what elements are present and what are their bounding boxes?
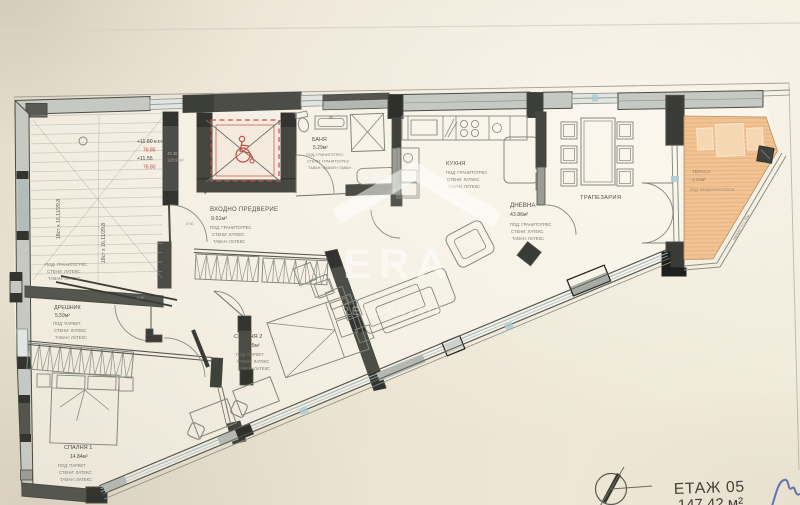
svg-text:ВХОДНО ПРЕДВЕРИЕ: ВХОДНО ПРЕДВЕРИЕ — [210, 207, 278, 213]
svg-text:ТАВАН: ЛАТЕКС: ТАВАН: ЛАТЕКС — [238, 366, 270, 371]
svg-text:14.84м²: 14.84м² — [70, 454, 88, 460]
svg-text:Ø 80: Ø 80 — [186, 222, 193, 226]
svg-text:ПОД: ПАРКЕТ: ПОД: ПАРКЕТ — [58, 463, 86, 468]
svg-text:ТРАПЕЗАРИЯ: ТРАПЕЗАРИЯ — [580, 195, 621, 201]
svg-text:128.92м²: 128.92м² — [167, 158, 185, 163]
svg-text:СТЕНИ: ЛАТЕКС: СТЕНИ: ЛАТЕКС — [237, 359, 270, 364]
svg-text:REAL ESTATE: REAL ESTATE — [341, 306, 445, 318]
svg-text:45.38: 45.38 — [167, 151, 178, 156]
svg-text:E: E — [343, 240, 371, 287]
svg-text:76.80: 76.80 — [143, 165, 156, 171]
svg-text:D 90: D 90 — [137, 296, 144, 300]
svg-text:76.85: 76.85 — [143, 148, 156, 154]
svg-text:13.95м²: 13.95м² — [242, 343, 260, 349]
svg-text:9.61м²: 9.61м² — [211, 216, 227, 222]
svg-text:БАНЯ: БАНЯ — [312, 137, 327, 143]
svg-text:СТЕНИ: ЛАТЕКС: СТЕНИ: ЛАТЕКС — [447, 177, 480, 182]
svg-text:43.86м²: 43.86м² — [510, 212, 529, 218]
svg-text:147.42 м²: 147.42 м² — [678, 495, 744, 505]
svg-text:ПОД: ГРАНИТОГРЕС: ПОД: ГРАНИТОГРЕС — [446, 170, 487, 175]
svg-text:A: A — [416, 240, 446, 287]
svg-text:+11.55: +11.55 — [137, 156, 153, 162]
svg-text:ДНЕВНА: ДНЕВНА — [510, 202, 536, 209]
svg-text:ПОД: ГРАНИТОГРЕС: ПОД: ГРАНИТОГРЕС — [306, 153, 344, 157]
svg-text:ТАВАН: ЛАТЕКС: ТАВАН: ЛАТЕКС — [55, 335, 87, 340]
svg-text:18ст x 16,11/29,8: 18ст x 16,11/29,8 — [101, 223, 107, 263]
svg-text:ТАВАН: ЛАТЕКС: ТАВАН: ЛАТЕКС — [213, 239, 245, 244]
svg-text:ДРЕШНИК: ДРЕШНИК — [54, 305, 82, 311]
svg-text:18ст x 16,11/29,8: 18ст x 16,11/29,8 — [56, 199, 62, 239]
svg-text:СТЕНИ: ГРАНИТОГРЕС: СТЕНИ: ГРАНИТОГРЕС — [307, 160, 350, 164]
svg-text:R: R — [379, 240, 409, 287]
svg-text:КУХНЯ: КУХНЯ — [446, 161, 465, 167]
svg-text:ТАВАН: ЛАТЕКС: ТАВАН: ЛАТЕКС — [48, 276, 81, 281]
svg-text:СТЕНИ: ЛАТЕКС: СТЕНИ: ЛАТЕКС — [47, 269, 80, 274]
svg-text:СПАЛНЯ 1: СПАЛНЯ 1 — [64, 445, 92, 451]
svg-text:СТЕНИ: ЛАТЕКС: СТЕНИ: ЛАТЕКС — [511, 229, 544, 234]
svg-text:ПОД: ГРАНИТОГРЕС: ПОД: ГРАНИТОГРЕС — [210, 225, 251, 230]
svg-text:СТЕНИ: ЛАТЕКС: СТЕНИ: ЛАТЕКС — [59, 470, 92, 475]
svg-text:ТАВАН: ЛАТЕКС: ТАВАН: ЛАТЕКС — [60, 477, 92, 482]
svg-text:ПОД: ГРАНИТОГРЕС: ПОД: ГРАНИТОГРЕС — [45, 262, 88, 267]
svg-text:5.59м²: 5.59м² — [55, 313, 70, 319]
svg-text:ТЕРАСА: ТЕРАСА — [692, 169, 711, 175]
svg-text:5.29м²: 5.29м² — [313, 145, 328, 151]
svg-text:+11.80 к.г.н.: +11.80 к.г.н. — [137, 139, 165, 145]
svg-text:3.23м²: 3.23м² — [692, 177, 706, 182]
svg-text:СПАЛНЯ 2: СПАЛНЯ 2 — [234, 334, 262, 340]
svg-text:ПОД: ПАРКЕТ: ПОД: ПАРКЕТ — [236, 352, 264, 357]
svg-text:СТЕНИ: ЛАТЕКС: СТЕНИ: ЛАТЕКС — [212, 232, 245, 237]
svg-text:ПОД: ГРАНИТОГРЕС: ПОД: ГРАНИТОГРЕС — [510, 222, 551, 227]
svg-text:ПОД: МРАМОРНИ ПЛОЧИ: ПОД: МРАМОРНИ ПЛОЧИ — [690, 188, 735, 192]
svg-text:ТАВАН: ЛАТЕКС: ТАВАН: ЛАТЕКС — [512, 236, 544, 241]
svg-text:СТЕНИ: ЛАТЕКС: СТЕНИ: ЛАТЕКС — [54, 328, 87, 333]
svg-text:ТАВАН: ОКАЧЕН ТАВАН: ТАВАН: ОКАЧЕН ТАВАН — [308, 166, 351, 170]
svg-text:ПОД: ПАРКЕТ: ПОД: ПАРКЕТ — [53, 321, 81, 326]
